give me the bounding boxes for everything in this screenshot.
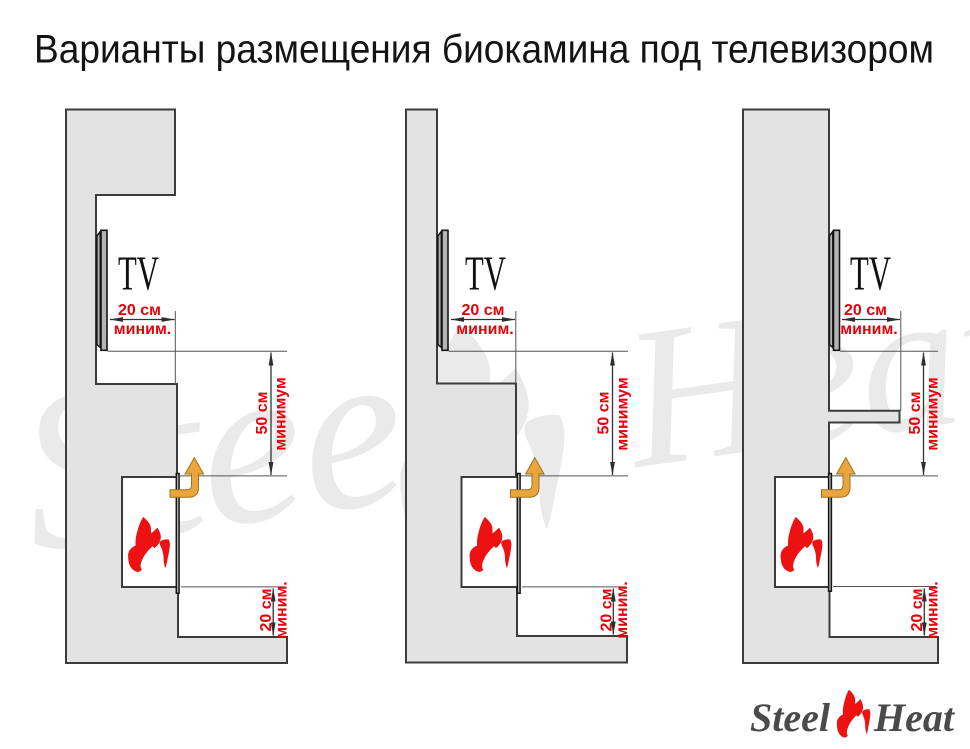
svg-text:миним.: миним. xyxy=(456,321,513,338)
svg-text:Heat: Heat xyxy=(873,695,956,740)
svg-text:20 см: 20 см xyxy=(462,302,505,319)
svg-text:20 см: 20 см xyxy=(118,302,161,319)
svg-text:50 см: 50 см xyxy=(907,392,924,435)
svg-text:миним.: миним. xyxy=(840,321,897,338)
svg-text:минимум: минимум xyxy=(925,377,942,450)
svg-text:минимум: минимум xyxy=(615,377,632,450)
svg-text:TV: TV xyxy=(465,246,506,301)
svg-text:Steel: Steel xyxy=(750,695,831,740)
svg-text:20 см: 20 см xyxy=(599,589,616,632)
svg-text:миним.: миним. xyxy=(614,581,631,638)
svg-text:TV: TV xyxy=(118,246,159,301)
svg-text:20 см: 20 см xyxy=(909,589,926,632)
svg-text:миним.: миним. xyxy=(114,321,171,338)
svg-text:TV: TV xyxy=(850,246,891,301)
svg-text:Варианты размещения биокамина: Варианты размещения биокамина под телеви… xyxy=(34,28,934,72)
svg-text:миним.: миним. xyxy=(925,581,942,638)
svg-text:20 см: 20 см xyxy=(844,302,887,319)
svg-text:20 см: 20 см xyxy=(258,589,275,632)
svg-text:50 см: 50 см xyxy=(596,392,613,435)
svg-text:50 см: 50 см xyxy=(254,392,271,435)
svg-text:минимум: минимум xyxy=(273,377,290,450)
svg-text:миним.: миним. xyxy=(274,581,291,638)
